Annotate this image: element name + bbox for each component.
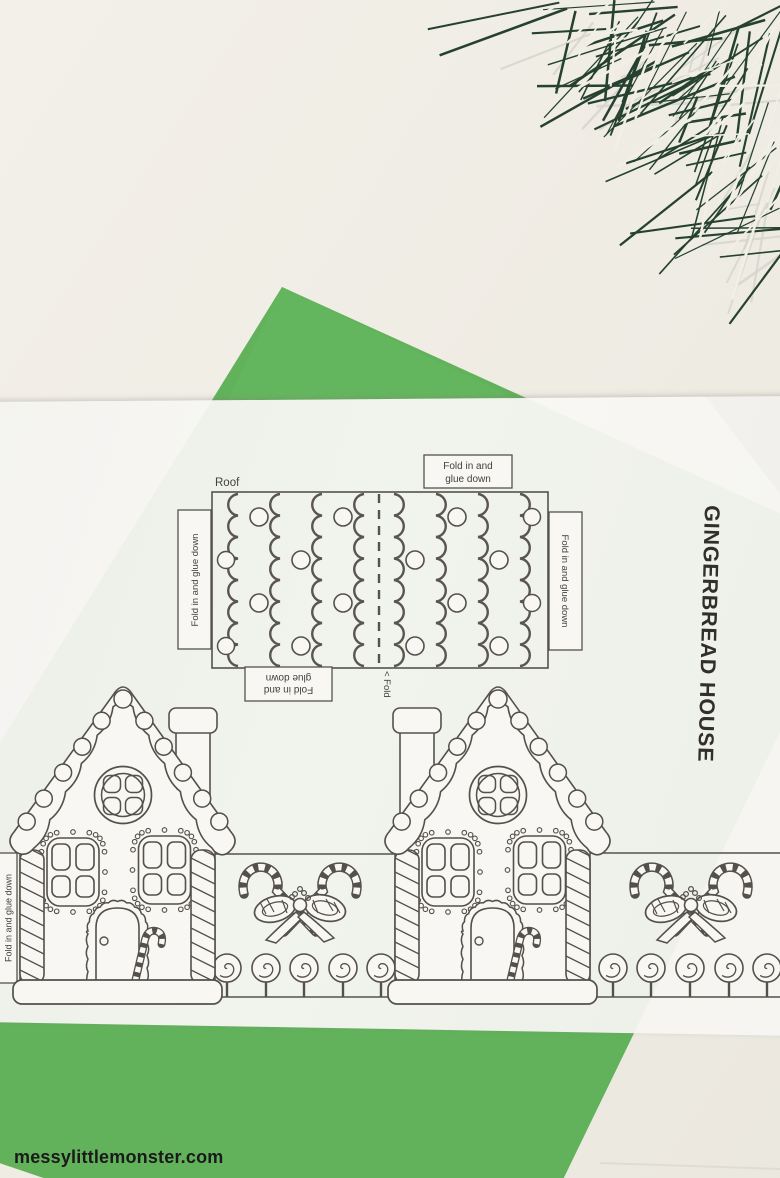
scene-canvas: Roof Fold in and glue down Fold in and g…	[0, 0, 780, 1178]
watermark: messylittlemonster.com	[14, 1147, 223, 1167]
photo-scene: Roof Fold in and glue down Fold in and g…	[0, 0, 780, 1178]
glue-tab-bottom-label-1: Fold in and	[264, 684, 313, 695]
fold-label: < Fold	[381, 671, 392, 698]
glue-tab-left-label: Fold in and glue down	[190, 534, 201, 627]
glue-tab-house-left-label: Fold in and glue down	[4, 874, 14, 962]
glue-tab-top-label-2: glue down	[445, 474, 491, 485]
glue-tab-right-label: Fold in and glue down	[559, 535, 570, 628]
glue-tab-bottom-label-2: glue down	[266, 672, 312, 683]
glue-tab-top-label-1: Fold in and	[443, 461, 492, 472]
roof-label: Roof	[215, 477, 240, 489]
